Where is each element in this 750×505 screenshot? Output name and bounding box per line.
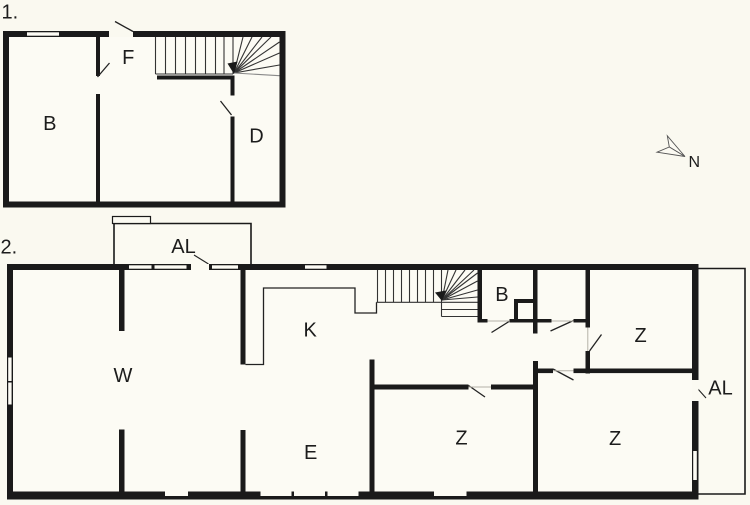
svg-text:D: D	[249, 126, 263, 148]
svg-text:N: N	[689, 154, 701, 171]
svg-text:2.: 2.	[1, 236, 18, 258]
svg-text:E: E	[304, 442, 317, 464]
svg-text:1.: 1.	[2, 1, 19, 23]
svg-text:W: W	[114, 365, 133, 387]
svg-text:B: B	[495, 284, 508, 306]
svg-text:Z: Z	[455, 428, 467, 450]
svg-text:Z: Z	[634, 325, 646, 347]
svg-text:AL: AL	[708, 378, 732, 400]
svg-text:K: K	[304, 320, 318, 342]
svg-text:B: B	[43, 113, 56, 135]
svg-text:AL: AL	[171, 236, 195, 258]
svg-text:F: F	[122, 47, 134, 69]
svg-text:Z: Z	[609, 428, 621, 450]
